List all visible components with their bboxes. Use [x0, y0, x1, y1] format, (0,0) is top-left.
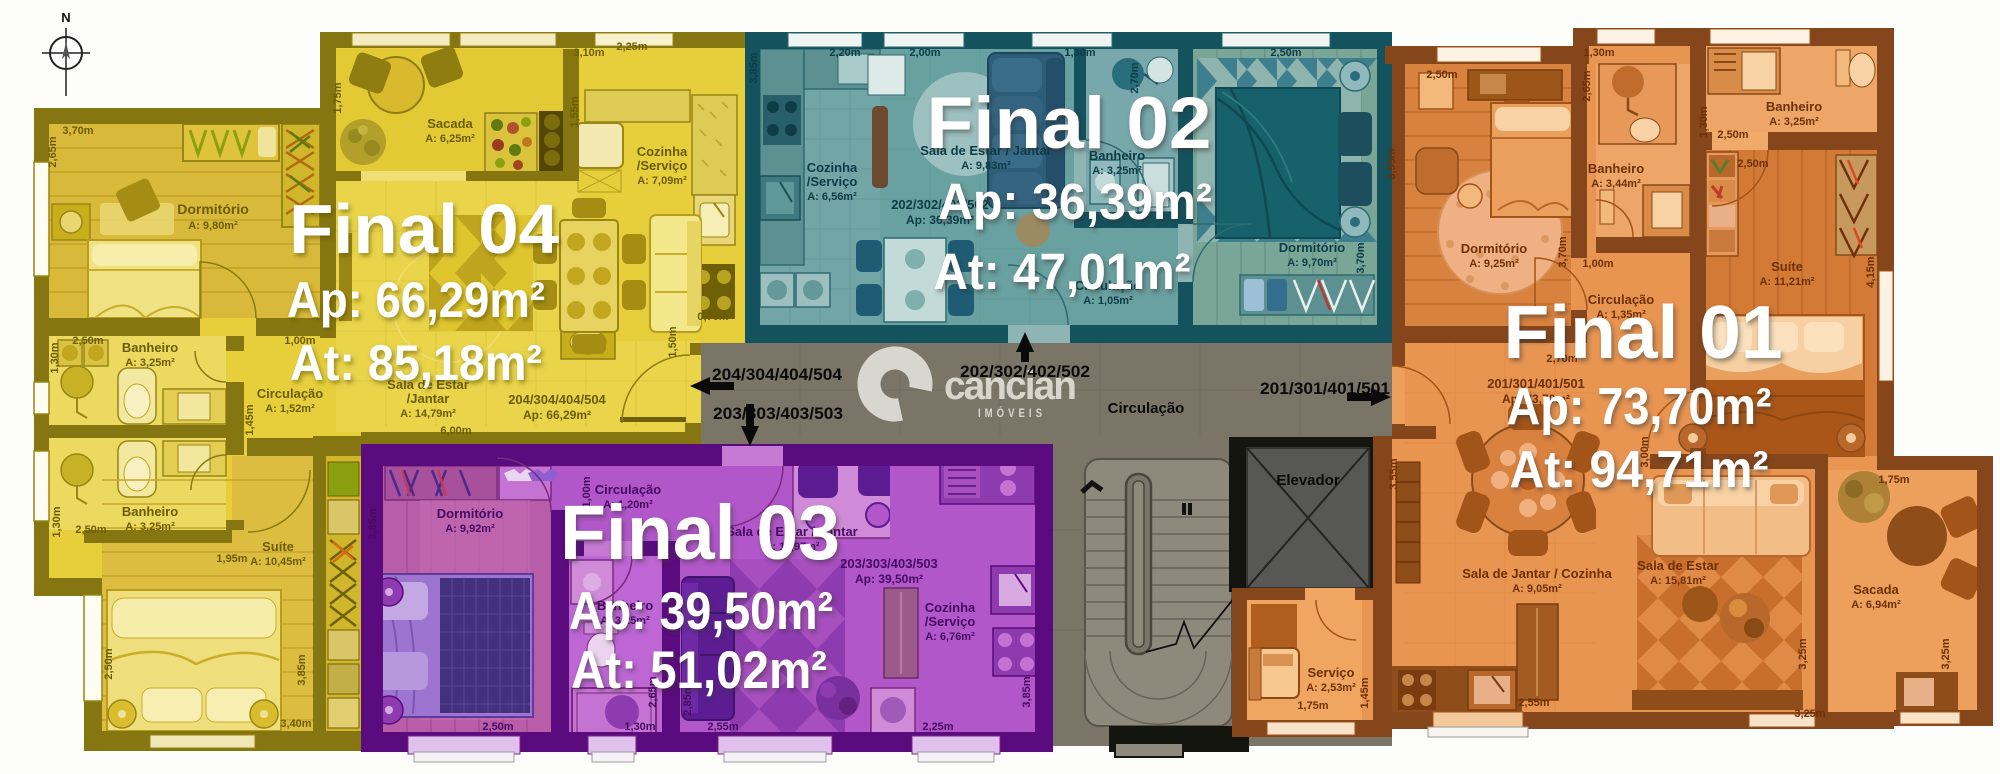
svg-text:At: 85,18m²: At: 85,18m²	[290, 335, 542, 391]
svg-text:1,55m: 1,55m	[569, 96, 581, 127]
svg-text:A: 7,09m²: A: 7,09m²	[637, 175, 687, 187]
svg-text:A: 14,79m²: A: 14,79m²	[400, 408, 456, 420]
svg-text:3,25m: 3,25m	[1797, 638, 1809, 669]
svg-text:1,00m: 1,00m	[1582, 258, 1613, 270]
svg-text:Ap: 39,50m²: Ap: 39,50m²	[569, 582, 833, 641]
svg-text:A: 6,56m²: A: 6,56m²	[807, 191, 857, 203]
svg-text:A: 9,25m²: A: 9,25m²	[1469, 258, 1519, 270]
svg-text:2,25m: 2,25m	[922, 721, 953, 733]
svg-text:Ap: 66,29m²: Ap: 66,29m²	[523, 408, 591, 422]
svg-text:1,30m: 1,30m	[624, 721, 655, 733]
svg-text:1,75m: 1,75m	[1297, 700, 1328, 712]
svg-text:A: 3,25m²: A: 3,25m²	[125, 521, 175, 533]
svg-text:A: 9,70m²: A: 9,70m²	[1287, 257, 1337, 269]
svg-text:Sala de Jantar / Cozinha: Sala de Jantar / Cozinha	[1462, 566, 1612, 581]
svg-text:A: 10,45m²: A: 10,45m²	[250, 556, 306, 568]
svg-text:Banheiro: Banheiro	[122, 504, 178, 519]
svg-text:203/303/403/503: 203/303/403/503	[840, 556, 938, 571]
svg-text:Final 04: Final 04	[289, 190, 559, 268]
svg-text:Ap: 66,29m²: Ap: 66,29m²	[287, 272, 545, 328]
svg-text:1,45m: 1,45m	[244, 404, 256, 435]
svg-text:2,50m: 2,50m	[1426, 69, 1457, 81]
svg-text:A: 6,76m²: A: 6,76m²	[925, 631, 975, 643]
svg-text:202/302/402/502: 202/302/402/502	[960, 362, 1090, 381]
svg-text:3,85m: 3,85m	[296, 654, 308, 685]
svg-text:2,00m: 2,00m	[909, 47, 940, 59]
svg-text:6,00m: 6,00m	[440, 425, 471, 437]
svg-text:A: 3,44m²: A: 3,44m²	[1591, 178, 1641, 190]
svg-text:3,55m: 3,55m	[1386, 148, 1398, 179]
svg-text:A: 9,05m²: A: 9,05m²	[1512, 583, 1562, 595]
svg-text:203/303/403/503: 203/303/403/503	[713, 404, 843, 423]
svg-text:A: 9,80m²: A: 9,80m²	[188, 220, 238, 232]
svg-text:IMÓVEIS: IMÓVEIS	[978, 405, 1046, 420]
svg-text:At: 51,02m²: At: 51,02m²	[571, 641, 827, 700]
svg-text:Final 02: Final 02	[927, 83, 1212, 164]
svg-text:3,85m: 3,85m	[1021, 676, 1033, 707]
svg-text:N: N	[61, 10, 70, 25]
svg-text:2,50m: 2,50m	[72, 335, 103, 347]
svg-text:A: 15,81m²: A: 15,81m²	[1650, 575, 1706, 587]
svg-text:1,45m: 1,45m	[1359, 677, 1371, 708]
svg-text:Ap: 39,50m²: Ap: 39,50m²	[855, 572, 923, 586]
svg-text:2,55m: 2,55m	[1518, 697, 1549, 709]
svg-text:/Serviço: /Serviço	[925, 614, 976, 629]
svg-text:3,25m: 3,25m	[1940, 638, 1952, 669]
svg-text:Banheiro: Banheiro	[1766, 99, 1822, 114]
svg-text:At: 94,71m²: At: 94,71m²	[1510, 441, 1769, 499]
svg-text:4,15m: 4,15m	[1865, 256, 1877, 287]
svg-text:Cozinha: Cozinha	[807, 160, 858, 175]
svg-text:A: 3,25m²: A: 3,25m²	[1769, 116, 1819, 128]
svg-text:1,75m: 1,75m	[332, 82, 344, 113]
svg-text:Cozinha: Cozinha	[925, 600, 976, 615]
svg-text:Serviço: Serviço	[1308, 665, 1355, 680]
svg-text:Cozinha: Cozinha	[637, 144, 688, 159]
svg-text:2,65m: 2,65m	[47, 136, 59, 167]
svg-text:A: 3,25m²: A: 3,25m²	[125, 357, 175, 369]
svg-text:Final 03: Final 03	[560, 490, 840, 576]
svg-text:1,95m: 1,95m	[216, 553, 247, 565]
svg-text:3,25m: 3,25m	[1794, 708, 1825, 720]
svg-text:A: 6,25m²: A: 6,25m²	[425, 133, 475, 145]
svg-text:Final 01: Final 01	[1504, 290, 1783, 374]
svg-text:Sacada: Sacada	[1853, 582, 1899, 597]
svg-text:Ap: 36,39m²: Ap: 36,39m²	[938, 173, 1212, 230]
svg-text:Dormitório: Dormitório	[1279, 240, 1346, 255]
svg-text:Suíte: Suíte	[262, 539, 294, 554]
svg-text:3,85m: 3,85m	[748, 52, 760, 83]
svg-text:3,70m: 3,70m	[1355, 242, 1367, 273]
svg-text:/Serviço: /Serviço	[637, 158, 688, 173]
svg-text:Banheiro: Banheiro	[122, 340, 178, 355]
svg-text:2,50m: 2,50m	[482, 721, 513, 733]
svg-text:1,30m: 1,30m	[1583, 47, 1614, 59]
svg-text:A: 9,92m²: A: 9,92m²	[445, 523, 495, 535]
svg-text:/Serviço: /Serviço	[807, 174, 858, 189]
svg-text:2,25m: 2,25m	[616, 41, 647, 53]
svg-text:1,50m: 1,50m	[667, 326, 679, 357]
svg-text:At: 47,01m²: At: 47,01m²	[934, 243, 1191, 300]
svg-text:2,50m: 2,50m	[75, 524, 106, 536]
svg-text:Dormitório: Dormitório	[437, 506, 504, 521]
svg-text:2,50m: 2,50m	[1737, 158, 1768, 170]
svg-text:Suíte: Suíte	[1771, 259, 1803, 274]
svg-text:1,30m: 1,30m	[1698, 106, 1710, 137]
svg-text:1,75m: 1,75m	[1878, 474, 1909, 486]
svg-text:3,70m: 3,70m	[1557, 236, 1569, 267]
svg-text:3,10m: 3,10m	[573, 47, 604, 59]
svg-text:3,40m: 3,40m	[280, 718, 311, 730]
svg-text:Ap: 73,70m²: Ap: 73,70m²	[1507, 378, 1772, 436]
svg-text:2,50m: 2,50m	[103, 648, 115, 679]
svg-text:2,50m: 2,50m	[1717, 129, 1748, 141]
svg-text:2,65m: 2,65m	[1581, 70, 1593, 101]
svg-text:Elevador: Elevador	[1276, 472, 1340, 489]
svg-text:A: 6,94m²: A: 6,94m²	[1851, 599, 1901, 611]
svg-text:A: 2,53m²: A: 2,53m²	[1306, 682, 1356, 694]
svg-text:0,70m: 0,70m	[697, 311, 728, 323]
svg-text:204/304/404/504: 204/304/404/504	[508, 392, 606, 407]
svg-text:3,55m: 3,55m	[1388, 458, 1400, 489]
svg-text:A: 11,21m²: A: 11,21m²	[1759, 276, 1814, 288]
svg-text:2,50m: 2,50m	[1270, 47, 1301, 59]
svg-text:Banheiro: Banheiro	[1588, 161, 1644, 176]
svg-text:Circulação: Circulação	[1108, 400, 1185, 417]
svg-text:204/304/404/504: 204/304/404/504	[712, 365, 843, 384]
svg-text:A: 1,52m²: A: 1,52m²	[265, 403, 315, 415]
svg-text:Sala de Estar: Sala de Estar	[1637, 558, 1719, 573]
svg-text:/Jantar: /Jantar	[407, 391, 450, 406]
svg-text:1,30m: 1,30m	[51, 506, 63, 537]
svg-text:3,70m: 3,70m	[62, 125, 93, 137]
svg-text:2,20m: 2,20m	[829, 47, 860, 59]
svg-text:1,30m: 1,30m	[49, 342, 61, 373]
svg-text:Dormitório: Dormitório	[1461, 241, 1528, 256]
svg-text:1,30m: 1,30m	[1064, 47, 1095, 59]
svg-text:Dormitório: Dormitório	[177, 201, 249, 217]
svg-text:2,55m: 2,55m	[707, 721, 738, 733]
svg-text:Sacada: Sacada	[427, 116, 473, 131]
svg-text:3,85m: 3,85m	[367, 508, 379, 539]
